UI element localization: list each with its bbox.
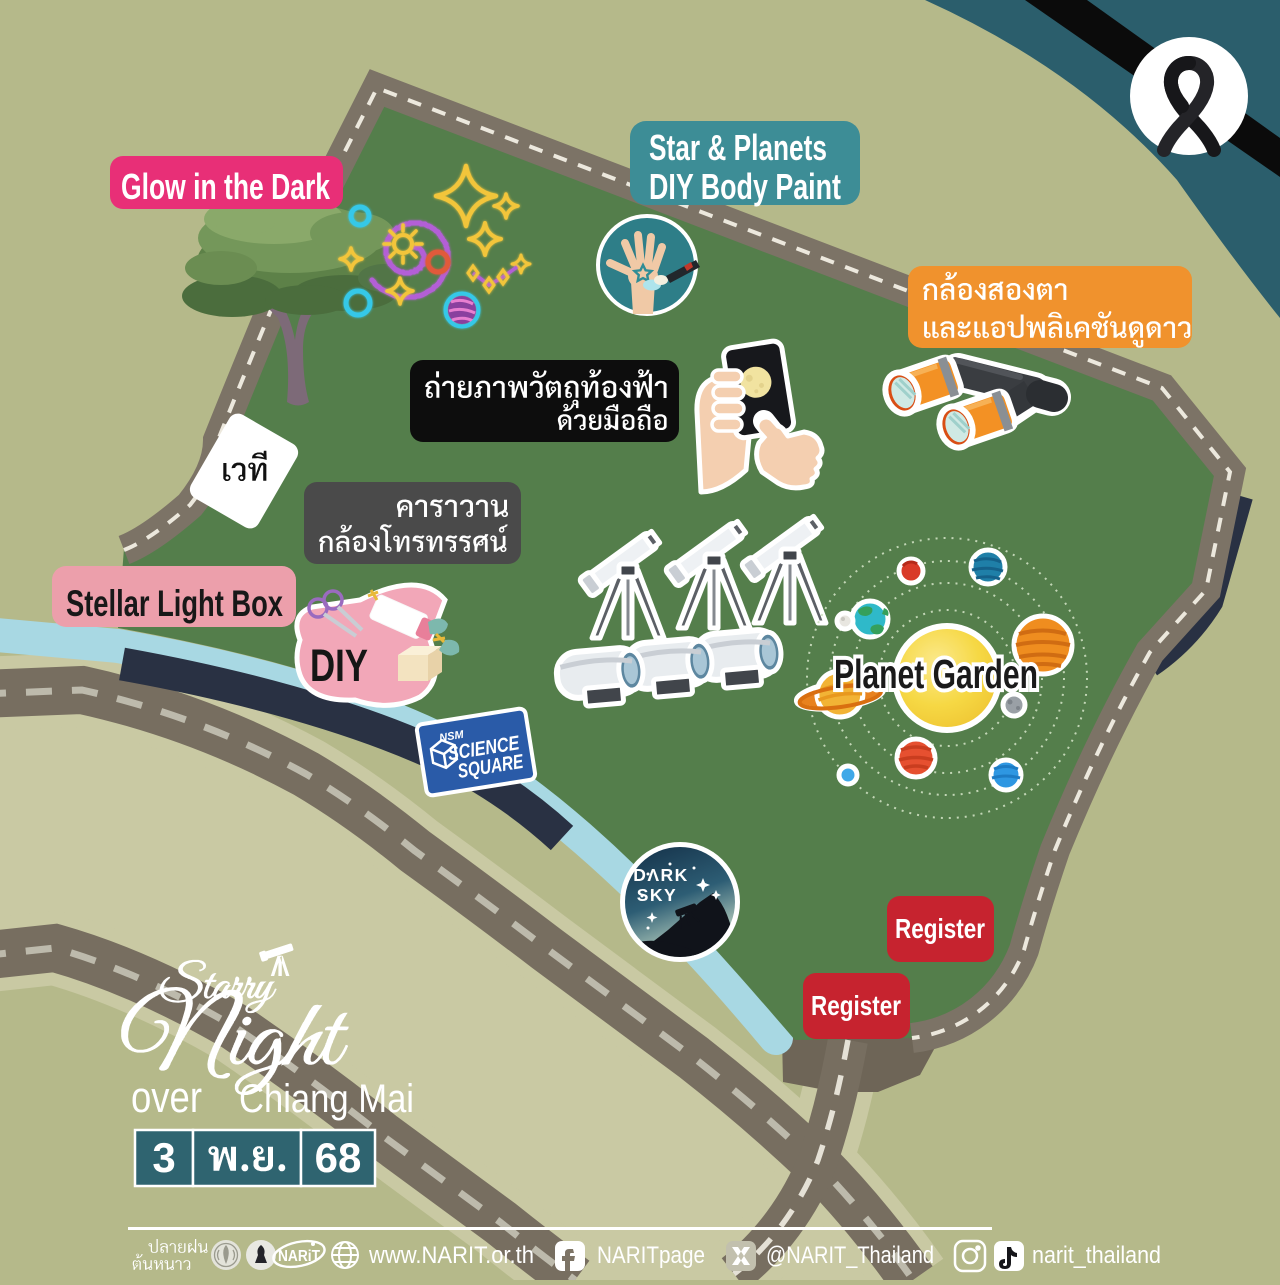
svg-text:www.NARIT.or.th: www.NARIT.or.th <box>368 1242 534 1269</box>
svg-text:Planet Garden: Planet Garden <box>834 651 1038 697</box>
svg-text:Register: Register <box>895 913 985 944</box>
svg-text:DIY: DIY <box>310 640 368 691</box>
svg-text:NARiT: NARiT <box>278 1248 320 1265</box>
svg-text:Stellar Light Box: Stellar Light Box <box>66 583 283 624</box>
svg-text:68: 68 <box>315 1134 362 1181</box>
svg-text:narit_thailand: narit_thailand <box>1032 1242 1161 1269</box>
svg-text:Chiang Mai: Chiang Mai <box>239 1077 414 1121</box>
svg-text:Glow in the Dark: Glow in the Dark <box>121 166 331 207</box>
svg-text:DIY Body Paint: DIY Body Paint <box>649 166 841 207</box>
svg-text:DΛRK: DΛRK <box>633 865 689 885</box>
svg-text:@NARIT_Thailand: @NARIT_Thailand <box>766 1242 934 1269</box>
svg-text:3: 3 <box>152 1134 175 1181</box>
svg-text:NARITpage: NARITpage <box>597 1242 705 1269</box>
svg-text:Star & Planets: Star & Planets <box>649 127 827 168</box>
svg-text:Register: Register <box>811 990 901 1021</box>
svg-text:over: over <box>131 1073 202 1122</box>
